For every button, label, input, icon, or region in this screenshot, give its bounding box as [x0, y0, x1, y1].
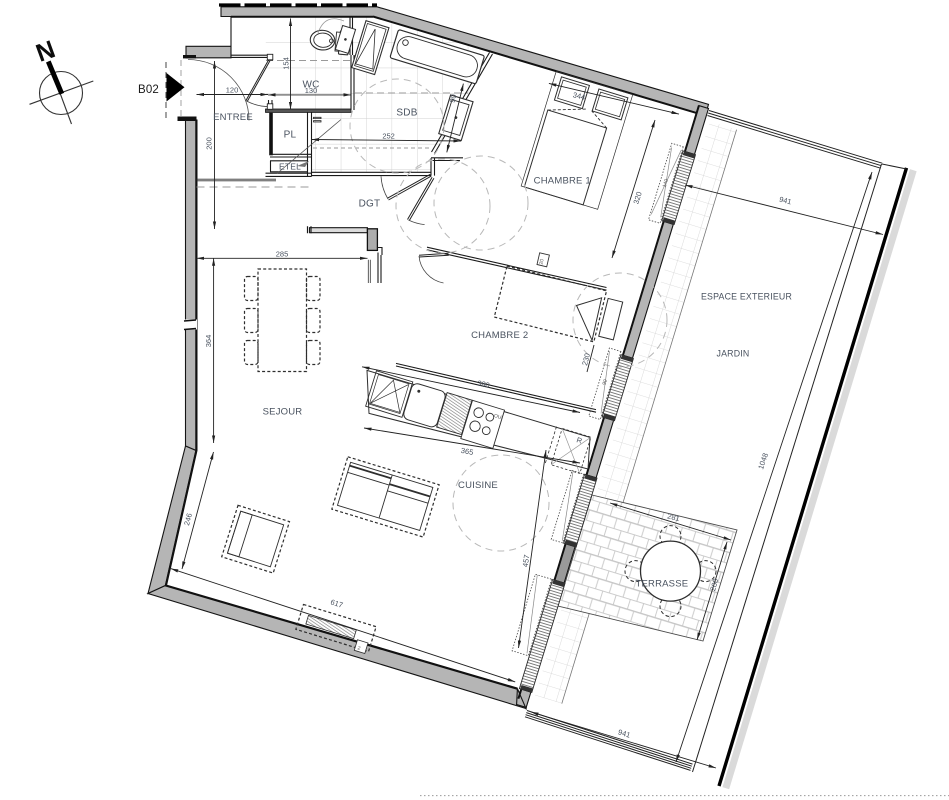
svg-text:JARDIN: JARDIN [717, 348, 750, 358]
svg-text:B02: B02 [138, 84, 159, 96]
svg-text:154: 154 [281, 57, 290, 70]
svg-text:CHAMBRE 2: CHAMBRE 2 [471, 330, 528, 341]
svg-text:ESPACE EXTERIEUR: ESPACE EXTERIEUR [701, 291, 792, 301]
svg-text:WC: WC [302, 79, 319, 90]
svg-text:ETEL: ETEL [279, 162, 301, 172]
svg-text:120: 120 [226, 86, 239, 95]
svg-text:SDB: SDB [396, 108, 417, 119]
svg-text:CHAMBRE 1: CHAMBRE 1 [534, 176, 591, 187]
svg-text:364: 364 [204, 335, 213, 348]
svg-text:CUISINE: CUISINE [458, 480, 498, 491]
svg-text:285: 285 [276, 249, 289, 258]
svg-text:TERRASSE: TERRASSE [635, 579, 688, 590]
svg-text:252: 252 [382, 132, 395, 141]
svg-text:SEJOUR: SEJOUR [263, 406, 303, 417]
svg-text:ENTREE: ENTREE [213, 112, 253, 123]
svg-text:PL: PL [284, 130, 297, 141]
svg-text:200: 200 [205, 137, 214, 150]
svg-text:457: 457 [521, 554, 532, 568]
svg-text:DGT: DGT [359, 198, 381, 209]
